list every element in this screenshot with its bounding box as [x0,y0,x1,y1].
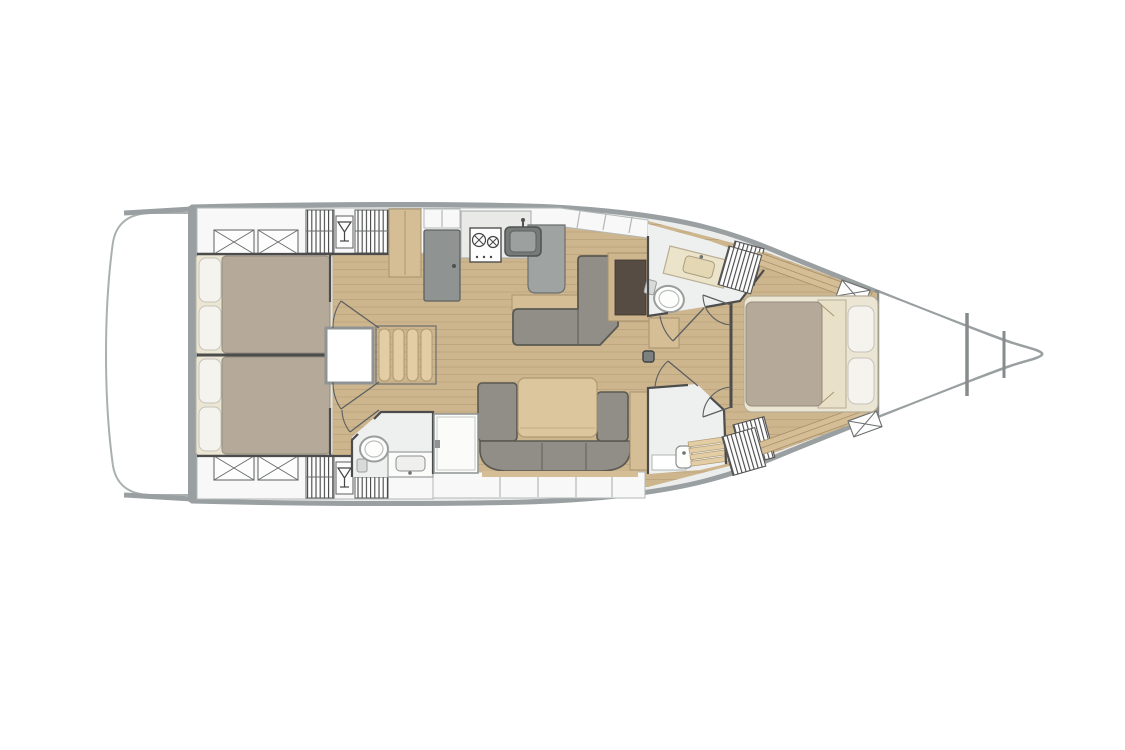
duvet [222,256,330,353]
duvet [222,357,330,454]
louvre-vent-icon [306,210,334,253]
aft-cabin-port [196,255,333,354]
hatch-cross-icon [214,230,254,254]
chart-table [608,253,651,321]
sofa-cushion-right [597,392,628,441]
duvet [746,302,822,406]
hatch-cross-icon [258,456,298,480]
vanity-sink [388,452,433,477]
appliance-cabinet [434,414,478,473]
sofa-cushion-left [478,383,517,441]
martini-glass-icon [336,216,353,248]
yacht-floor-plan [0,0,1125,750]
engine-hatch [326,328,373,383]
forepeak-floor [877,292,1041,416]
forepeak [877,290,1041,418]
louvre-vent-icon [306,456,334,498]
pillow [199,258,221,302]
floor-plan-svg [0,0,1125,750]
pillow [848,358,874,404]
passage-cabinet [649,318,679,348]
pillow [199,306,221,350]
swim-platform [106,213,192,495]
mast-step [643,351,654,362]
sofa-base-trim [482,471,638,477]
stove-burners-icon [470,228,501,262]
hatch-cross-icon [214,456,254,480]
dinette [478,378,648,477]
hatch-cross-icon [258,230,298,254]
pillow [199,359,221,403]
martini-glass-icon [336,462,353,494]
fridge-handle [452,264,456,268]
louvre-vent-icon [355,210,388,253]
transom-bulkhead [188,206,197,502]
sofa-cushion-bottom [480,441,630,471]
pillow [848,306,874,352]
pillow [199,407,221,451]
owner-bed [744,296,878,412]
aft-cabin-starboard [196,356,333,455]
settee-trim [512,295,580,310]
sideboard-plank [630,392,648,470]
